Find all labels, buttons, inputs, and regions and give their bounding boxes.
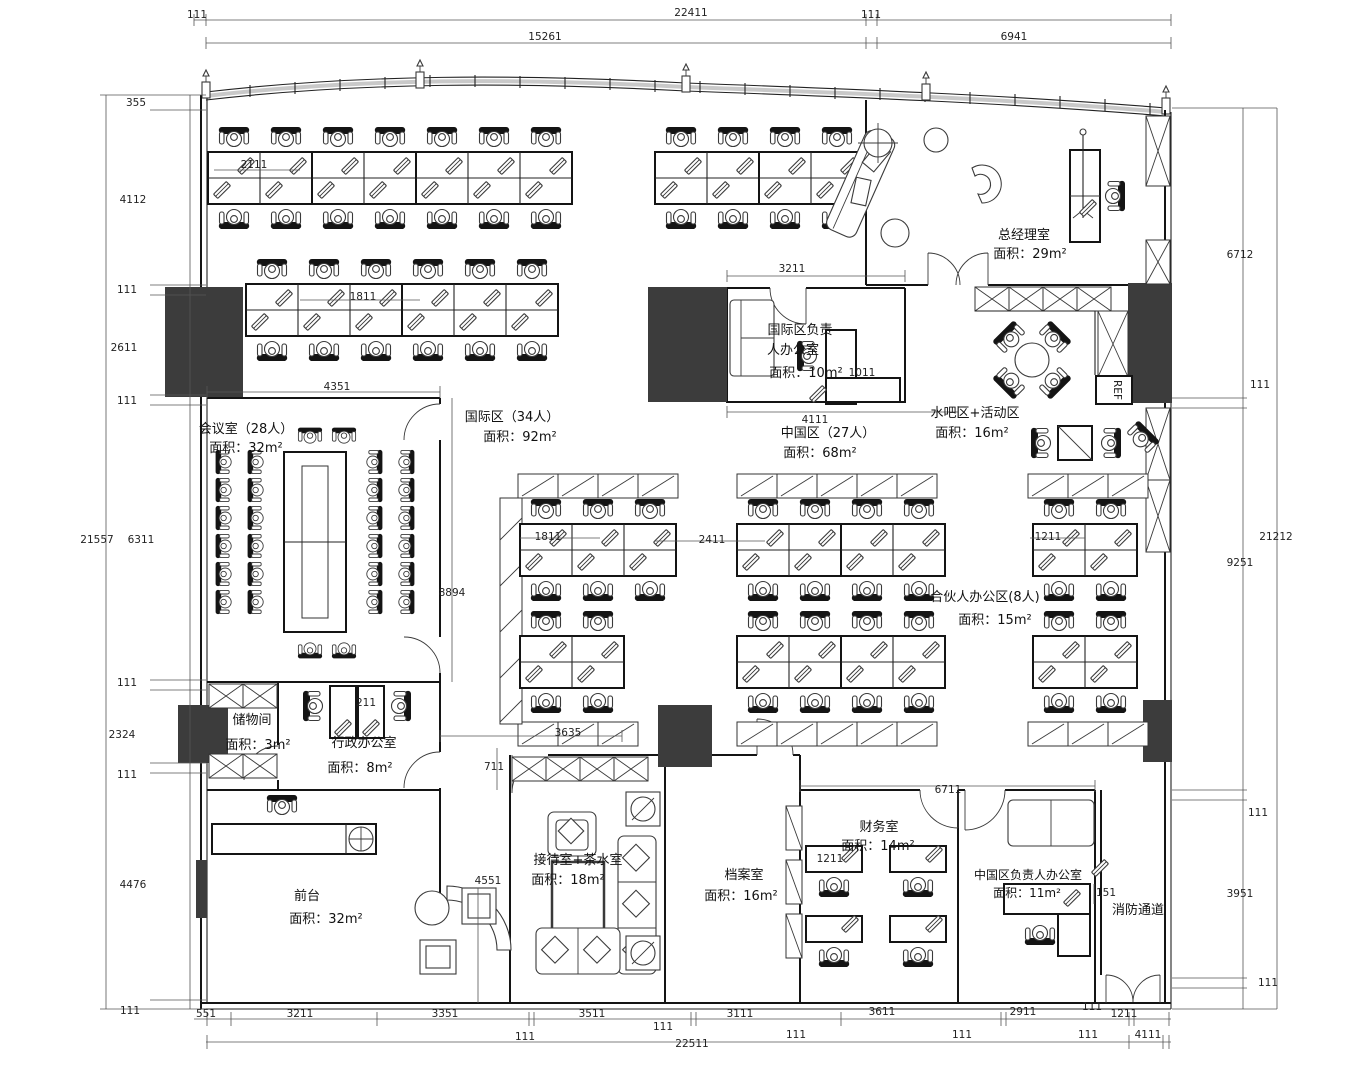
dim-top-15261: 15261: [528, 31, 561, 43]
dim-left-4476: 4476: [120, 879, 147, 891]
dim-bottom-3211: 3211: [287, 1008, 314, 1020]
meeting-room-furniture: [216, 428, 415, 659]
room-area-front-desk: 面积：32m²: [289, 912, 362, 927]
desk-bank: [737, 499, 945, 601]
dim-bottom-111a: 111: [653, 1021, 673, 1033]
room-label-waiting: 接待室+茶水室: [534, 852, 623, 868]
dim-inner-4111: 4111: [802, 414, 829, 426]
dim-top-6941: 6941: [1001, 31, 1028, 43]
dim-left-355: 355: [126, 97, 146, 109]
facade-post-icon: [202, 70, 210, 98]
room-area-gm: 面积：29m²: [993, 247, 1066, 262]
dim-inner-2111: 2111: [241, 159, 268, 171]
dim-bottom-3611: 3611: [869, 1006, 896, 1018]
room-label-admin: 行政办公室: [331, 735, 396, 751]
admin-office-furniture: [303, 686, 411, 738]
dim-right-111b: 111: [1248, 807, 1268, 819]
fridge: REF: [1096, 376, 1132, 404]
room-area-china-mgr: 面积：11m²: [993, 886, 1061, 900]
room-label-china-zone: 中国区（27人）: [781, 426, 876, 441]
gm-office-furniture: [824, 123, 1125, 247]
dim-inner-3635: 3635: [555, 727, 582, 739]
front-desk-furniture: [212, 795, 511, 974]
room-label-finance: 财务室: [859, 819, 898, 835]
dim-bottom-111d: 111: [786, 1029, 806, 1041]
room-area-meeting: 面积：32m²: [209, 441, 282, 456]
facade-post-icon: [416, 60, 424, 88]
dim-inner-2411: 2411: [699, 534, 726, 546]
dim-inner-3211: 3211: [779, 263, 806, 275]
dim-bottom-111e: 111: [952, 1029, 972, 1041]
room-label-front-desk: 前台: [294, 888, 320, 904]
room-area-intl-mgr: 面积：10m²: [769, 366, 842, 381]
dim-left-111d: 111: [117, 769, 137, 781]
dim-top-111-left: 111: [187, 9, 207, 21]
dim-left-6311: 6311: [128, 534, 155, 546]
room-area-finance: 面积：14m²: [841, 839, 914, 854]
dim-bottom-111c: 111: [515, 1031, 535, 1043]
dim-left-111b: 111: [117, 395, 137, 407]
office-floor-plan: REF: [0, 0, 1354, 1065]
room-label-partner: 合伙人办公区(8人): [930, 590, 1039, 605]
fridge-label: REF: [1111, 380, 1123, 400]
dim-inner-1011: 1011: [849, 367, 876, 379]
facade-post-icon: [1162, 86, 1170, 114]
dim-inner-6711: 6711: [935, 784, 962, 796]
dim-bottom-2911: 2911: [1010, 1006, 1037, 1018]
dim-left-2324: 2324: [109, 729, 136, 741]
dim-bottom-111f: 111: [1078, 1029, 1098, 1041]
desk-bank: [737, 611, 945, 713]
dim-left-overall: 21557: [80, 534, 113, 546]
dim-bottom-3351: 3351: [432, 1008, 459, 1020]
dim-bottom-3511: 3511: [579, 1008, 606, 1020]
dim-left-111a: 111: [117, 284, 137, 296]
dim-left-111c: 111: [117, 677, 137, 689]
dim-inner-4351: 4351: [324, 381, 351, 393]
dim-top-overall: 22411: [674, 7, 707, 19]
dim-left-111e: 111: [120, 1005, 140, 1017]
room-label-china-mgr: 中国区负责人办公室: [974, 867, 1082, 882]
dim-inner-1211b: 1211: [817, 853, 844, 865]
desk-bank: [1033, 499, 1137, 601]
facade-post-icon: [682, 64, 690, 92]
desk-bank: [246, 259, 558, 361]
desk-bank: [1033, 611, 1137, 713]
dim-bottom-1211: 1211: [1111, 1008, 1138, 1020]
room-label-intl-mgr-2: 人办公室: [767, 342, 819, 358]
floorplan-canvas: REF: [0, 0, 1354, 1065]
dim-inner-211: 211: [356, 697, 376, 709]
room-area-admin: 面积：8m²: [327, 761, 392, 776]
room-area-waterbar: 面积：16m²: [935, 426, 1008, 441]
archive-shelves: [786, 806, 802, 958]
room-area-partner: 面积：15m²: [958, 613, 1031, 628]
dim-inner-1811b: 1811: [535, 531, 562, 543]
dim-right-3951: 3951: [1227, 888, 1254, 900]
dim-right-6712: 6712: [1227, 249, 1254, 261]
dim-right-9251: 9251: [1227, 557, 1254, 569]
room-area-intl-zone: 面积：92m²: [483, 430, 556, 445]
room-label-meeting: 会议室（28人）: [199, 421, 294, 437]
room-label-archive: 档案室: [724, 867, 763, 883]
room-label-fire: 消防通道: [1112, 902, 1164, 918]
dim-inner-1211a: 1211: [1035, 531, 1062, 543]
dim-bottom-4111: 4111: [1135, 1029, 1162, 1041]
dim-left-4112: 4112: [120, 194, 147, 206]
room-label-intl-mgr-1: 国际区负责: [767, 323, 832, 338]
desk-bank: [520, 499, 676, 601]
room-label-gm: 总经理室: [998, 227, 1050, 243]
dim-inner-4551: 4551: [475, 875, 502, 887]
room-area-china-zone: 面积：68m²: [783, 446, 856, 461]
dim-bottom-overall: 22511: [675, 1038, 708, 1050]
room-area-storage: 面积：3m²: [225, 738, 290, 753]
room-label-waterbar: 水吧区+活动区: [931, 406, 1020, 421]
dim-right-111a: 111: [1250, 379, 1270, 391]
dim-bottom-3111: 3111: [727, 1008, 754, 1020]
room-area-archive: 面积：16m²: [704, 889, 777, 904]
dim-bottom-551: 551: [196, 1008, 216, 1020]
dim-inner-8894: 8894: [439, 587, 466, 599]
desk-bank: [520, 611, 624, 713]
desk-bank: [208, 127, 572, 229]
dim-right-111c: 111: [1258, 977, 1278, 989]
curtain-wall: [202, 60, 1170, 116]
dim-inner-151: 151: [1096, 887, 1116, 899]
facade-post-icon: [922, 72, 930, 100]
dim-bottom-111b: 111: [1082, 1001, 1102, 1013]
dim-left-2611: 2611: [111, 342, 138, 354]
dim-inner-711: 711: [484, 761, 504, 773]
room-label-intl-zone: 国际区（34人）: [465, 410, 560, 425]
dim-right-overall: 21212: [1259, 531, 1292, 543]
dim-top-111-mid: 111: [861, 9, 881, 21]
room-label-storage: 储物间: [232, 713, 271, 728]
dim-inner-1811a: 1811: [350, 291, 377, 303]
room-area-waiting: 面积：18m²: [531, 873, 604, 888]
